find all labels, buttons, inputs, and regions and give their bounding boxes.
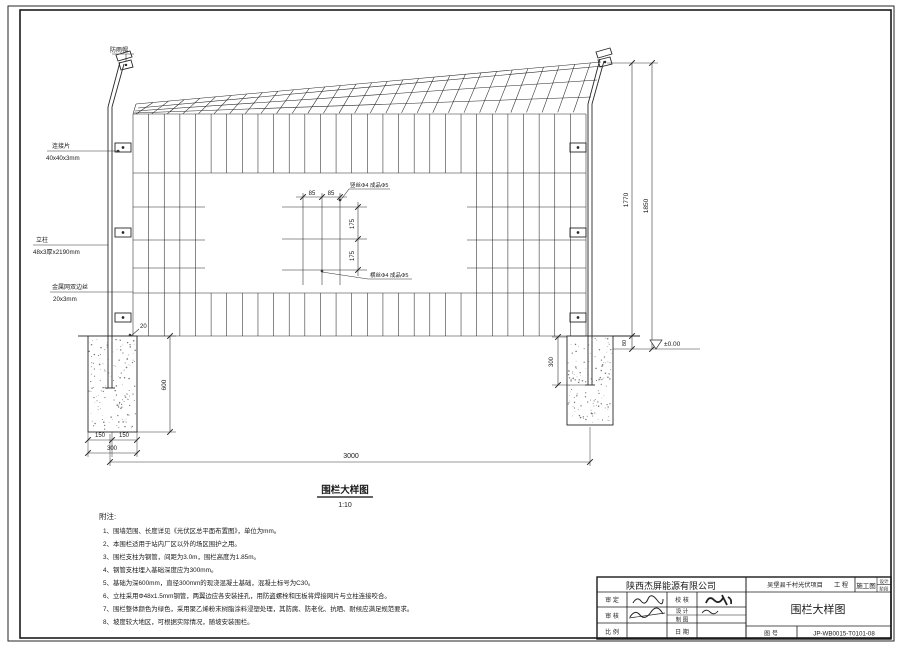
dimension-ticks (85, 60, 655, 465)
post-label: 立柱 (36, 236, 48, 244)
note-4: 4、钢管支柱埋入基础深度应为300mm。 (103, 565, 217, 574)
dim-175-1: 175 (350, 218, 356, 229)
level-label: ±0.00 (664, 341, 681, 348)
design-stage: 施工图 (856, 581, 876, 590)
mesh-detail-grid (282, 193, 367, 285)
drawing-no: JP-WB0015-T0101-08 (813, 631, 875, 638)
dim-150-2: 150 (119, 433, 130, 439)
wire-mesh-panel (133, 114, 586, 336)
notes-heading: 附注: (99, 511, 116, 521)
horizontal-wire-callout: 横丝Φ4 成品Φ5 (370, 271, 408, 279)
signature (702, 610, 718, 614)
note-2: 2、本围栏适用于站内厂区以外的场区围护之用。 (103, 539, 241, 548)
signature (706, 595, 731, 605)
dim-3000: 3000 (343, 453, 359, 460)
field-drafted: 制 图 (676, 616, 689, 624)
mesh-spec: 20x3mm (53, 296, 77, 303)
mesh-label: 金属网双边丝 (52, 283, 88, 291)
dim-175-2: 175 (350, 250, 356, 261)
signature (630, 608, 663, 617)
note-3: 3、围栏支柱为钢管，间距为3.0m，围栏高度为1.85m。 (103, 552, 260, 561)
field-date: 日 期 (675, 628, 689, 636)
dim-300-embed: 300 (549, 356, 555, 367)
foundation-right (567, 336, 613, 425)
view-title: 围栏大样图 (321, 484, 369, 496)
company-name: 陕西杰屏能源有限公司 (626, 580, 716, 591)
dim-150-1: 150 (95, 433, 106, 439)
dim-85-1: 85 (309, 191, 316, 197)
leader-lines (33, 54, 662, 497)
field-reviewed: 审 核 (605, 612, 619, 620)
connector-label: 连接片 (52, 142, 70, 150)
dim-20: 20 (140, 324, 147, 330)
foundation-left (88, 336, 137, 432)
stage-label-2: 阶段 (880, 586, 889, 593)
stage-label-1: 设计 (880, 578, 889, 585)
note-6: 6、立柱采用Φ48x1.5mm钢管，两翼边应各安装挂孔，用防盗螺栓和压板将焊接网… (103, 591, 391, 600)
drawing-no-label: 图 号 (764, 631, 778, 638)
drawing-title: 围栏大样图 (791, 602, 846, 616)
dim-1770: 1770 (623, 192, 630, 207)
rain-cap-label: 防雨帽 (110, 46, 128, 54)
note-7: 7、围栏整体颜色为绿色，采用聚乙烯粉末树脂涂料浸塑处理，其防腐、防老化、抗晒、耐… (103, 604, 413, 613)
bent-top-section (133, 62, 603, 114)
fence-detail-drawing: 防雨帽 连接片 40x40x3mm 立柱 48x3厚x2190mm 金属网双边丝… (0, 0, 900, 647)
field-checked: 校 核 (675, 596, 689, 604)
drawing-sheet: 防雨帽 连接片 40x40x3mm 立柱 48x3厚x2190mm 金属网双边丝… (0, 0, 900, 647)
signature (633, 596, 663, 604)
dim-80: 80 (622, 340, 628, 346)
notes-block: 附注: 1、围墙范围、长度详见《光伏区总平面布置图》，单位为mm。 2、本围栏适… (99, 511, 413, 626)
note-8: 8、坡度较大地区，可根据实际情况，随坡安装围栏。 (103, 617, 254, 626)
view-scale: 1:10 (338, 502, 352, 509)
field-approved: 审 定 (605, 596, 619, 604)
field-designed: 设 计 (676, 607, 689, 615)
dim-300-width: 300 (107, 446, 118, 452)
connector-spec: 40x40x3mm (46, 155, 80, 162)
post-spec: 48x3厚x2190mm (33, 249, 80, 256)
dim-1850: 1850 (643, 198, 650, 213)
rain-cap-right (596, 48, 612, 58)
title-block: 陕西杰屏能源有限公司 吴堡县千村光伏项目 工 程 施工图 设计 阶段 审 定 校… (597, 577, 891, 639)
field-scale: 比 例 (605, 628, 619, 636)
dim-600: 600 (161, 379, 168, 390)
dim-85-2: 85 (328, 191, 335, 197)
note-5: 5、基础为深600mm，直径300mm的现浇混凝土基础，混凝土标号为C30。 (103, 578, 314, 587)
project-name: 吴堡县千村光伏项目 (767, 581, 823, 589)
vertical-wire-callout: 竖丝Φ4 成品Φ5 (350, 181, 388, 189)
project-suffix: 工 程 (834, 581, 848, 589)
note-1: 1、围墙范围、长度详见《光伏区总平面布置图》，单位为mm。 (103, 526, 280, 535)
